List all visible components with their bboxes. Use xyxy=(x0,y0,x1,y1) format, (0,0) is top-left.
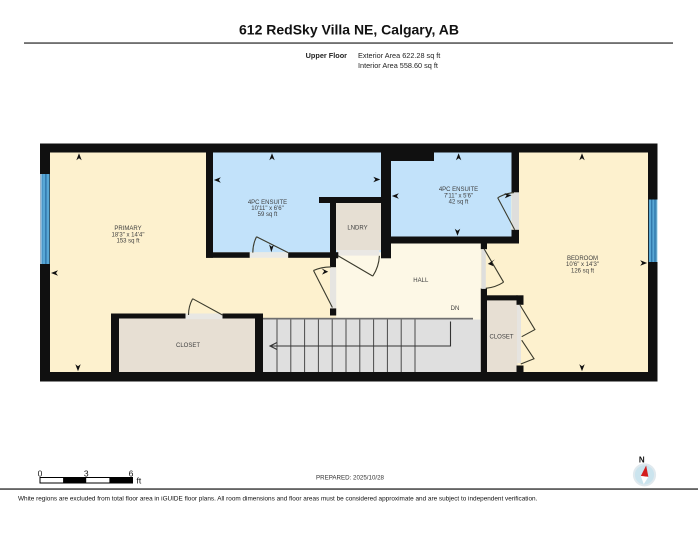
svg-text:10'6" x 14'3": 10'6" x 14'3" xyxy=(566,262,599,268)
svg-text:CLOSET: CLOSET xyxy=(176,343,200,349)
svg-text:LNDRY: LNDRY xyxy=(347,225,367,231)
svg-text:Upper Floor: Upper Floor xyxy=(306,51,348,60)
svg-text:DN: DN xyxy=(451,306,460,312)
svg-text:Exterior Area 622.28 sq ft: Exterior Area 622.28 sq ft xyxy=(358,51,440,60)
svg-text:4PC ENSUITE: 4PC ENSUITE xyxy=(439,187,478,193)
svg-text:White regions are excluded fro: White regions are excluded from total fl… xyxy=(18,495,538,502)
svg-text:42 sq ft: 42 sq ft xyxy=(449,200,469,206)
svg-text:ft: ft xyxy=(137,476,142,486)
svg-text:59 sq ft: 59 sq ft xyxy=(258,212,278,218)
svg-text:PREPARED: 2025/10/28: PREPARED: 2025/10/28 xyxy=(316,475,385,482)
svg-text:0: 0 xyxy=(38,468,43,478)
svg-text:Interior Area 558.60 sq ft: Interior Area 558.60 sq ft xyxy=(358,61,438,70)
svg-text:CLOSET: CLOSET xyxy=(489,334,513,340)
svg-text:153 sq ft: 153 sq ft xyxy=(116,239,139,245)
svg-text:18'3" x 14'4": 18'3" x 14'4" xyxy=(112,232,145,238)
svg-text:612 RedSky Villa NE, Calgary,: 612 RedSky Villa NE, Calgary, AB xyxy=(239,22,459,38)
svg-text:HALL: HALL xyxy=(413,278,429,284)
svg-text:N: N xyxy=(639,455,645,464)
svg-text:126 sq ft: 126 sq ft xyxy=(571,268,594,274)
svg-text:6: 6 xyxy=(129,468,134,478)
svg-text:BEDROOM: BEDROOM xyxy=(567,256,598,262)
svg-text:7'11" x 5'6": 7'11" x 5'6" xyxy=(444,193,473,199)
svg-text:3: 3 xyxy=(84,468,89,478)
svg-text:PRIMARY: PRIMARY xyxy=(114,226,141,232)
